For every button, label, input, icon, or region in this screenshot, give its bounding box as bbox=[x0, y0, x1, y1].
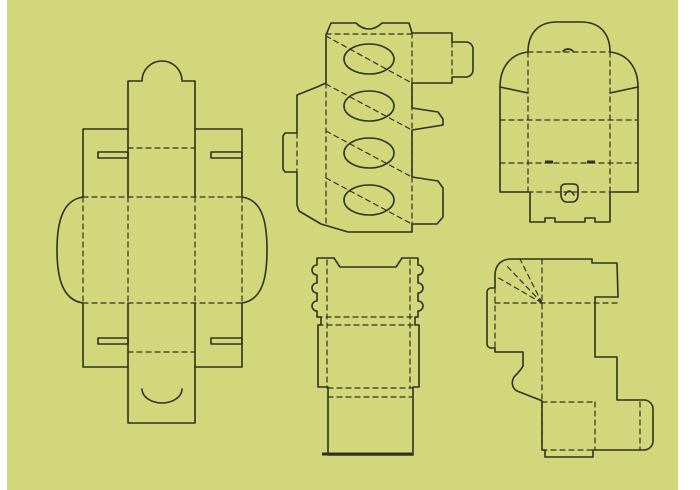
dome-lid-box-dieline-cut-line bbox=[500, 87, 638, 93]
tall-tuck-box-dieline-cut-line bbox=[98, 152, 242, 158]
dieline-wrap-box bbox=[487, 259, 653, 457]
sleeve-box-dieline-fold-line bbox=[317, 317, 419, 325]
dieline-tall-tuck-box bbox=[57, 61, 267, 423]
dieline-dome-lid-box bbox=[500, 22, 638, 222]
tall-tuck-box-dieline-fold-line bbox=[83, 197, 242, 303]
right-margin-strip bbox=[678, 0, 700, 490]
cupcake-wrap-dieline-ellipse-cutout bbox=[344, 138, 394, 168]
tall-tuck-box-dieline-cut-line bbox=[98, 338, 242, 344]
cupcake-wrap-dieline-ellipse-cutout bbox=[344, 91, 394, 121]
dome-lid-box-dieline-fold-line bbox=[528, 52, 610, 192]
dieline-cupcake-wrap bbox=[283, 23, 473, 232]
wrap-box-dieline-fold-line bbox=[497, 259, 542, 303]
wrap-box-dieline-fold-line bbox=[542, 402, 595, 450]
wrap-box-dieline-cut-line bbox=[487, 259, 653, 457]
box-templates-illustration bbox=[0, 0, 700, 490]
left-margin-strip bbox=[0, 0, 7, 490]
tall-tuck-box-dieline-fold-line bbox=[83, 197, 242, 303]
sleeve-box-dieline-fold-line bbox=[328, 388, 413, 397]
sleeve-box-dieline-fold-line bbox=[327, 260, 410, 388]
cupcake-wrap-dieline-cut-line bbox=[283, 23, 473, 232]
dome-lid-box-dieline-cut-line bbox=[530, 193, 610, 222]
dome-lid-box-dieline-cut-line bbox=[500, 87, 638, 192]
sleeve-box-dieline-cut-line bbox=[312, 258, 423, 455]
tall-tuck-box-dieline-cut-line bbox=[142, 389, 182, 403]
cupcake-wrap-dieline-ellipse-cutout bbox=[344, 185, 394, 215]
dieline-canvas bbox=[0, 0, 700, 490]
dome-lid-box-dieline-cut-line bbox=[561, 184, 578, 202]
dome-lid-box-dieline-cut-line bbox=[528, 22, 610, 52]
wrap-box-dieline-fold-line bbox=[595, 402, 640, 450]
cupcake-wrap-dieline-fold-line bbox=[326, 36, 410, 223]
tall-tuck-box-dieline-cut-line bbox=[128, 129, 195, 367]
dome-lid-box-dieline-fold-line bbox=[500, 120, 638, 163]
tall-tuck-box-dieline-fold-line bbox=[128, 148, 195, 352]
tall-tuck-box-dieline-cut-line bbox=[57, 61, 267, 423]
dome-lid-box-dieline-cut-line bbox=[500, 52, 638, 87]
dome-lid-box-dieline-cut-line bbox=[563, 49, 573, 51]
dieline-sleeve-box bbox=[312, 258, 423, 455]
